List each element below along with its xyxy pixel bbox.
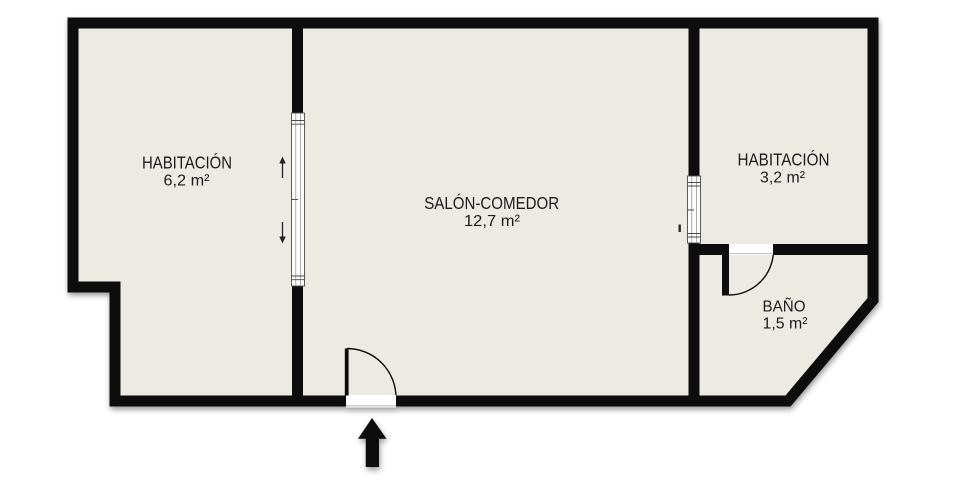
room-area-habitacion-right: 3,2 m² [760,170,806,187]
door-stop-tick [679,225,681,233]
room-area-bano: 1,5 m² [763,316,809,333]
room-area-habitacion-left: 6,2 m² [164,173,211,190]
room-label-habitacion-left: HABITACIÓN [142,152,232,173]
bathroom-door-leaf [722,244,729,296]
entrance-door-leaf [345,349,349,396]
entrance-arrow-icon [358,418,387,467]
floorplan-svg: HABITACIÓN 6,2 m² SALÓN-COMEDOR 12,7 m² … [0,0,960,499]
room-label-bano: BAÑO [763,296,806,316]
room-area-salon-comedor: 12,7 m² [464,213,521,230]
room-label-salon-comedor: SALÓN-COMEDOR [424,192,559,213]
floorplan-canvas: HABITACIÓN 6,2 m² SALÓN-COMEDOR 12,7 m² … [0,0,960,499]
room-label-habitacion-right: HABITACIÓN [738,149,830,170]
